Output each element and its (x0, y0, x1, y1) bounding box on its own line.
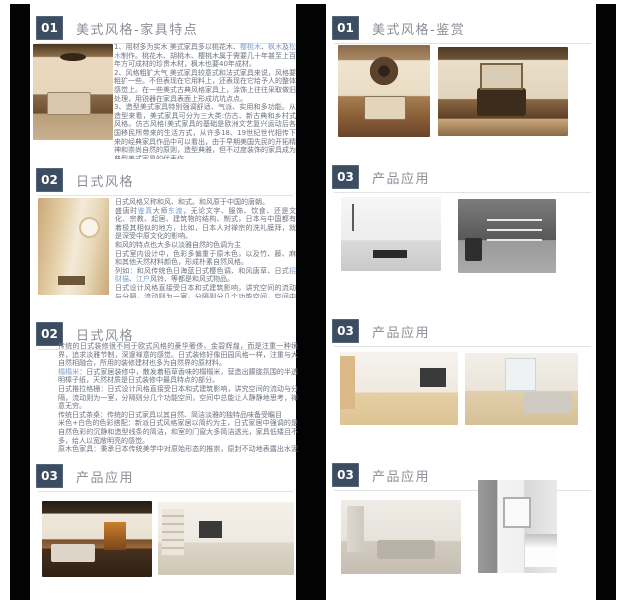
header-divider (334, 43, 591, 44)
header-divider (38, 491, 293, 492)
paragraph: 原木色家具：秉承日本传统美学中对原始形态的推崇，原封不动地表露出水泥表面、木材质… (58, 445, 298, 454)
text-segment: 列如：和风传统色日海蓝日式樱色调、和风唐草、日式 (115, 267, 289, 275)
paragraph: 和风的特点也大多以淡雅自然的色调为主 (115, 241, 296, 250)
paragraph: 日式设计风格直接受日本和式建筑影响，讲究空间的流动与分隔，流动则为一室，分隔则分… (115, 284, 296, 298)
japanese-style-body-text-1: 日式风格又称和风、和式。和风原于中国的唐朝。 盛唐时鉴真大师东渡，无论文字、服饰… (115, 198, 296, 298)
section-number-badge: 03 (36, 464, 63, 488)
header-divider (334, 192, 591, 193)
section-title: 产品应用 (76, 467, 134, 486)
japanese-light-wood-living-room-photo (340, 352, 458, 425)
paragraph: 米色+白色的色彩搭配：新派日式风格家居以简约为主，日式家居中强调的是自然色彩的沉… (58, 419, 298, 445)
american-classic-bedroom-photo (33, 44, 113, 140)
paragraph: 1、用材多为实木 美式家具多以桃花木、樱桃木、枫木及松木制作。桃花木、胡桃木、樱… (114, 43, 296, 69)
paragraph: 榻榻米：日式家居装修中，散发着稻草香味的榻榻米，营造出朦胧氛围的半透明樟子纸，天… (58, 368, 298, 385)
japanese-light-wood-lounge-photo (465, 353, 578, 425)
text-link[interactable]: 江户 (136, 275, 150, 283)
text-link[interactable]: 东渡 (168, 207, 183, 215)
text-segment: 日式推拉格栅：日式设计风格直接受日本和式建筑影响，讲究空间的流动与分隔，流动则为… (58, 385, 298, 410)
section-header-product-application-2: 03 产品应用 (332, 318, 591, 344)
header-divider (38, 195, 293, 196)
paragraph: 3、造型美式家具特别强调舒适、气派、实用和多功能。从造型来看，美式家具可分为三大… (114, 103, 296, 159)
section-header-product-application-1: 03 产品应用 (332, 164, 591, 190)
text-segment: 盛唐时 (115, 207, 138, 215)
composite-screenshot: 01 美式风格-家具特点 1、用材多为实木 美式家具多以桃花木、樱桃木、枫木及松… (0, 0, 619, 609)
section-number-badge: 03 (332, 165, 359, 189)
section-number-badge: 01 (36, 16, 63, 40)
section-header-american-furniture: 01 美式风格-家具特点 (36, 15, 293, 41)
text-link[interactable]: 枫木 (268, 43, 282, 51)
section-title: 产品应用 (372, 168, 430, 187)
monochrome-minimal-living-room-photo (341, 197, 441, 271)
text-segment: 原木色家具：秉承日本传统美学中对原始形态的推崇，原封不动地表露出水泥表面、木材质… (58, 445, 298, 454)
section-number-badge: 03 (332, 463, 359, 487)
right-panel-side-bar (596, 4, 616, 600)
text-segment: 、 (261, 43, 268, 51)
american-fan-ceiling-living-room-photo (338, 45, 430, 137)
text-segment: 日式设计风格直接受日本和式建筑影响，讲究空间的流动与分隔，流动则为一室，分隔则分… (115, 284, 296, 298)
american-beam-dining-room-photo (438, 47, 568, 136)
paragraph: 列如：和风传统色日海蓝日式樱色调、和风唐草、日式招财猫、江户风铃、等都是和风式物… (115, 267, 296, 284)
section-title: 产品应用 (372, 322, 430, 341)
japanese-round-window-room-photo (38, 198, 109, 295)
section-header-american-appreciation: 01 美式风格-鉴赏 (332, 15, 591, 41)
text-segment: 制作。桃花木、胡桃木、樱桃木属于需要几十年甚至上百年方可成材的珍贵木材，枫木也要… (114, 52, 296, 69)
text-segment: 大师 (153, 207, 168, 215)
paragraph: 日式室内设计中，色彩多偏重于原木色，以及竹、藤、麻和其他天然材料颜色，形成朴素自… (115, 250, 296, 267)
text-segment: 3、造型美式家具特别强调舒适、气派、实用和多功能。从造型来看，美式家具可分为三大… (114, 103, 296, 159)
left-panel-side-bar (10, 4, 30, 600)
text-segment: 及 (282, 43, 289, 51)
section-title: 产品应用 (372, 466, 430, 485)
text-link[interactable]: 榻榻米 (58, 368, 79, 376)
paragraph: 日式风格又称和风、和式。和风原于中国的唐朝。 (115, 198, 296, 207)
american-furniture-body-text: 1、用材多为实木 美式家具多以桃花木、樱桃木、枫木及松木制作。桃花木、胡桃木、樱… (114, 43, 296, 159)
left-page: 01 美式风格-家具特点 1、用材多为实木 美式家具多以桃花木、樱桃木、枫木及松… (30, 0, 296, 609)
paragraph: 2、风格粗犷大气 美式家具较意式和法式家具来说，风格要粗犷一些。不但表现在它用料… (114, 69, 296, 103)
text-link[interactable]: 鉴真 (138, 207, 153, 215)
text-segment: 、 (129, 275, 136, 283)
japanese-style-body-text-2: 传统的日式装修很不同于欧式风格的豪华奢侈、金碧辉煌，而是注重一种境界，追求淡雅节… (58, 342, 298, 454)
section-header-japanese-style-1: 02 日式风格 (36, 167, 293, 193)
header-divider (334, 346, 591, 347)
text-segment: 2、风格粗犷大气 美式家具较意式和法式家具来说，风格要粗犷一些。不但表现在它用料… (114, 69, 296, 103)
text-segment: 日式室内设计中，色彩多偏重于原木色，以及竹、藤、麻和其他天然材料颜色，形成朴素自… (115, 250, 296, 267)
section-header-product-application-left: 03 产品应用 (36, 463, 293, 489)
modern-white-kitchen-photo (478, 480, 557, 573)
right-page: 01 美式风格-鉴赏 03 产品应用 03 产品应用 03 产品应用 (326, 0, 594, 609)
section-title: 日式风格 (76, 325, 134, 344)
paragraph: 盛唐时鉴真大师东渡，无论文字、服饰、饮食、还是文化、宗教、起居、建筑物的结构、制… (115, 207, 296, 241)
text-segment: 日式风格又称和风、和式。和风原于中国的唐朝。 (115, 198, 269, 206)
middle-side-bars (296, 4, 326, 600)
section-title: 美式风格-家具特点 (76, 19, 198, 38)
american-white-classic-living-room-photo (158, 502, 294, 575)
text-segment: 和风的特点也大多以淡雅自然的色调为主 (115, 241, 241, 249)
text-segment: 1、用材多为实木 美式家具多以桃花木、 (114, 43, 240, 51)
text-link[interactable]: 樱桃木 (240, 43, 261, 51)
monochrome-shelving-wall-photo (458, 199, 556, 273)
section-number-badge: 03 (332, 319, 359, 343)
section-title: 日式风格 (76, 171, 134, 190)
paragraph: 日式推拉格栅：日式设计风格直接受日本和式建筑影响，讲究空间的流动与分隔，流动则为… (58, 385, 298, 411)
text-segment: ：日式家居装修中，散发着稻草香味的榻榻米，营造出朦胧氛围的半透明樟子纸，天然材质… (58, 368, 298, 385)
text-segment: 风铃、等都是和风式物品。 (150, 275, 234, 283)
section-number-badge: 02 (36, 168, 63, 192)
section-title: 美式风格-鉴赏 (372, 19, 465, 38)
section-number-badge: 01 (332, 16, 359, 40)
modern-gray-living-room-photo (341, 500, 461, 574)
text-segment: 米色+白色的色彩搭配：新派日式风格家居以简约为主，日式家居中强调的是自然色彩的沉… (58, 419, 298, 444)
text-segment: 传统日式茶桌：传统的日式家具以其自然、简洁淡雅的独特品味备受瞩目 (58, 411, 282, 419)
american-dark-beam-living-room-photo (42, 501, 152, 577)
paragraph: 传统的日式装修很不同于欧式风格的豪华奢侈、金碧辉煌，而是注重一种境界，追求淡雅节… (58, 342, 298, 368)
text-segment: 传统的日式装修很不同于欧式风格的豪华奢侈、金碧辉煌，而是注重一种境界，追求淡雅节… (58, 342, 298, 367)
